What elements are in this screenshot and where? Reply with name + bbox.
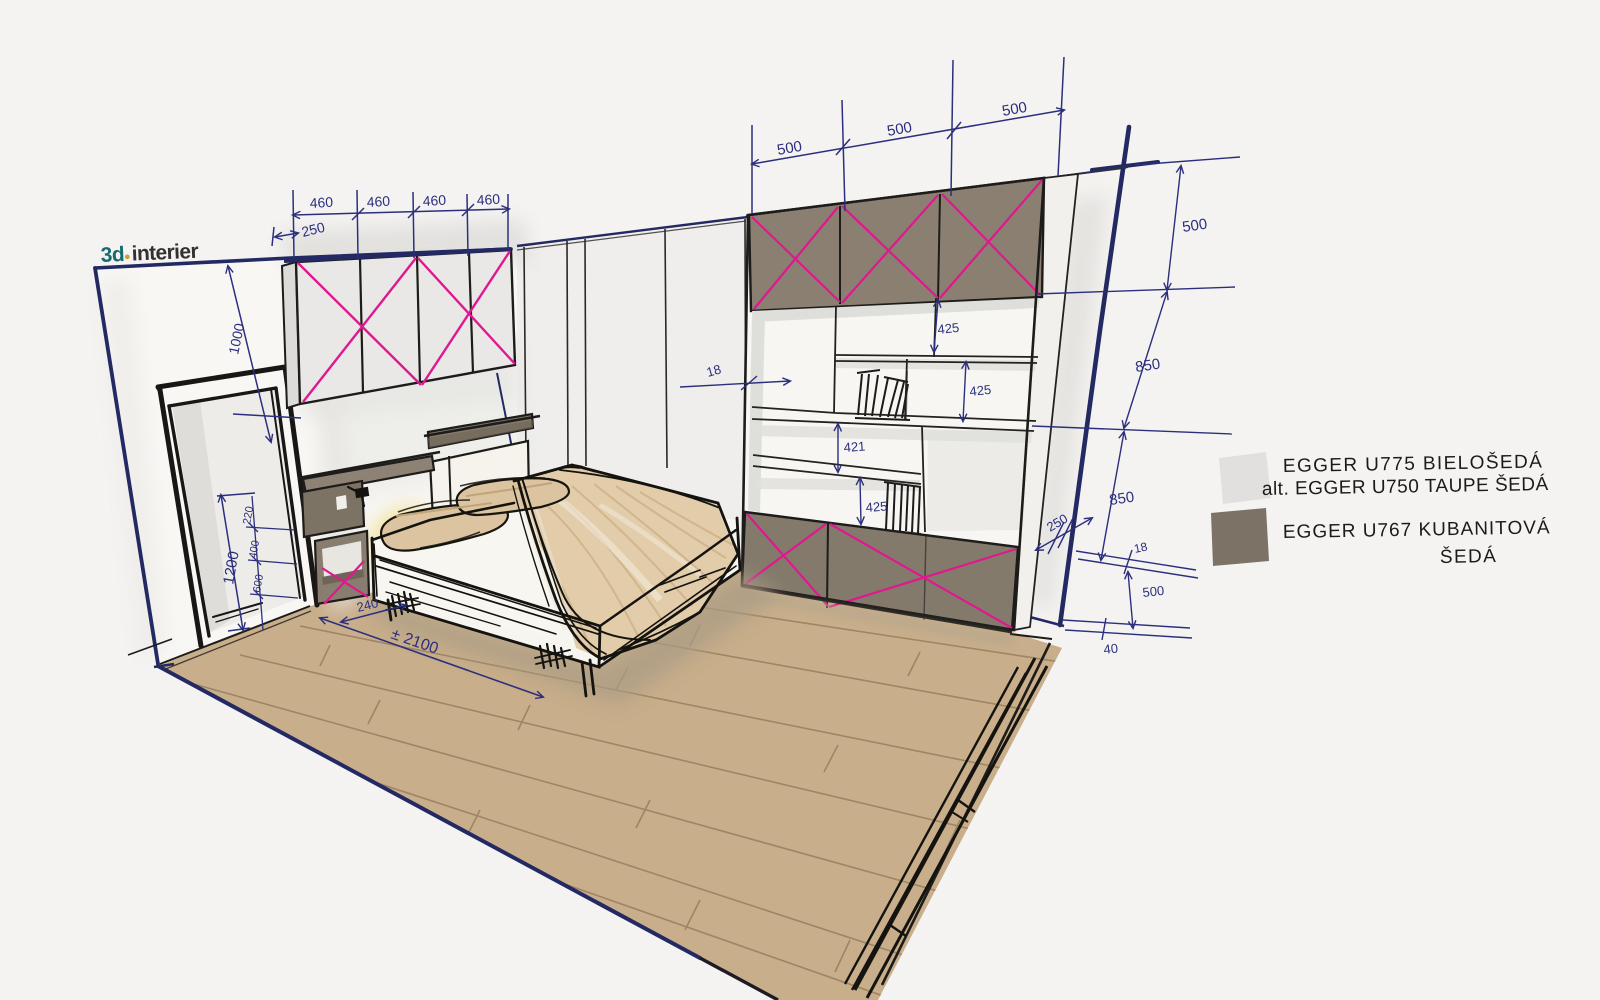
svg-text:interier: interier <box>131 240 199 266</box>
svg-text:850: 850 <box>1134 356 1161 376</box>
svg-text:500: 500 <box>1142 583 1165 600</box>
svg-text:850: 850 <box>1108 489 1135 509</box>
svg-text:460: 460 <box>366 193 390 210</box>
svg-text:460: 460 <box>309 194 333 211</box>
svg-text:425: 425 <box>937 320 960 337</box>
svg-text:425: 425 <box>969 382 992 399</box>
svg-text:425: 425 <box>865 499 888 515</box>
svg-text:460: 460 <box>476 191 500 208</box>
svg-text:ŠEDÁ: ŠEDÁ <box>1440 545 1498 568</box>
svg-text:EGGER U775 BIELOŠEDÁ: EGGER U775 BIELOŠEDÁ <box>1283 450 1544 477</box>
svg-text:421: 421 <box>843 439 866 455</box>
svg-text:40: 40 <box>1103 641 1119 657</box>
svg-text:3d: 3d <box>100 243 124 267</box>
svg-text:500: 500 <box>1181 216 1208 236</box>
svg-text:460: 460 <box>422 192 446 209</box>
